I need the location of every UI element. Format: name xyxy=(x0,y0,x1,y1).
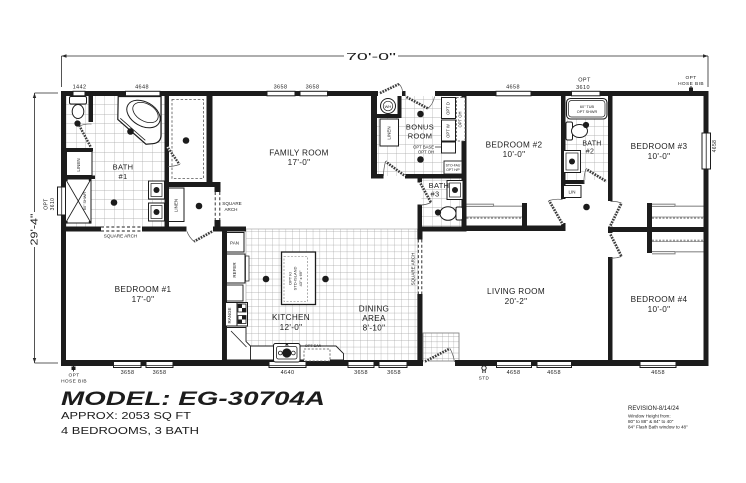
svg-text:AREA: AREA xyxy=(362,314,386,323)
svg-text:10'-0": 10'-0" xyxy=(648,152,671,161)
svg-text:SQUARE ARCH: SQUARE ARCH xyxy=(411,253,416,286)
svg-text:STO-FAU: STO-FAU xyxy=(446,164,461,168)
svg-text:LIVING ROOM: LIVING ROOM xyxy=(487,287,545,296)
svg-text:MODEL: EG-30704A: MODEL: EG-30704A xyxy=(61,388,325,410)
svg-text:REVISION-8/14/24: REVISION-8/14/24 xyxy=(628,405,679,412)
svg-text:3658: 3658 xyxy=(274,85,288,91)
svg-text:43" x 69": 43" x 69" xyxy=(298,270,303,287)
svg-text:LINEN: LINEN xyxy=(387,126,392,139)
svg-text:80" to 88" & 84" to 40": 80" to 88" & 84" to 40" xyxy=(628,419,674,424)
svg-text:OPT H/P: OPT H/P xyxy=(446,168,460,172)
svg-text:17'-0": 17'-0" xyxy=(288,158,311,167)
svg-text:29'-4": 29'-4" xyxy=(30,213,41,246)
svg-text:BEDROOM #3: BEDROOM #3 xyxy=(631,142,688,151)
svg-text:RANGE: RANGE xyxy=(227,307,232,323)
svg-text:LIN: LIN xyxy=(568,190,575,195)
svg-text:12'-0": 12'-0" xyxy=(280,323,303,332)
svg-text:10'-0": 10'-0" xyxy=(648,305,671,314)
svg-text:DINING: DINING xyxy=(359,305,389,314)
svg-text:4 BEDROOMS, 3 BATH: 4 BEDROOMS, 3 BATH xyxy=(61,426,199,437)
svg-text:ROOM: ROOM xyxy=(408,132,433,141)
svg-text:STD-ISLAND: STD-ISLAND xyxy=(293,266,298,290)
svg-text:3658: 3658 xyxy=(387,370,401,376)
svg-text:REFER: REFER xyxy=(232,262,237,278)
svg-text:LINEN: LINEN xyxy=(76,158,81,171)
svg-text:#3: #3 xyxy=(431,190,440,199)
svg-text:KITCHEN: KITCHEN xyxy=(272,313,310,322)
svg-text:4658: 4658 xyxy=(506,85,520,91)
svg-text:#1: #1 xyxy=(119,172,128,181)
svg-text:3610: 3610 xyxy=(576,85,590,91)
svg-text:BEDROOM #4: BEDROOM #4 xyxy=(631,295,688,304)
svg-text:BATH: BATH xyxy=(113,163,134,172)
svg-text:BEDROOM #1: BEDROOM #1 xyxy=(115,285,172,294)
svg-text:STD: STD xyxy=(479,376,490,381)
svg-text:ARCH: ARCH xyxy=(224,207,237,212)
svg-text:60" SHWR: 60" SHWR xyxy=(83,192,87,210)
svg-text:8'-10": 8'-10" xyxy=(363,324,386,333)
svg-text:4640: 4640 xyxy=(281,370,295,376)
svg-text:4658: 4658 xyxy=(507,370,521,376)
svg-text:1442: 1442 xyxy=(73,85,87,91)
svg-text:SQUARE: SQUARE xyxy=(222,201,241,206)
svg-text:BONUS: BONUS xyxy=(406,123,434,132)
svg-text:OPT: OPT xyxy=(68,373,79,379)
svg-text:3658: 3658 xyxy=(153,370,167,376)
svg-text:4648: 4648 xyxy=(135,85,149,91)
svg-text:OPT OH: OPT OH xyxy=(418,150,434,155)
svg-text:#2: #2 xyxy=(586,149,594,156)
svg-text:OPT W: OPT W xyxy=(446,124,451,138)
svg-text:4658: 4658 xyxy=(712,140,718,153)
svg-text:4658: 4658 xyxy=(651,370,665,376)
svg-text:84" Flash Bath window to 48": 84" Flash Bath window to 48" xyxy=(628,425,688,430)
svg-text:BATH: BATH xyxy=(582,141,601,148)
svg-text:4658: 4658 xyxy=(547,370,561,376)
svg-text:OPT: OPT xyxy=(578,78,591,84)
svg-text:LINEN: LINEN xyxy=(174,199,179,212)
svg-text:3658: 3658 xyxy=(306,85,320,91)
svg-text:70'-0": 70'-0" xyxy=(346,52,397,63)
svg-text:3610: 3610 xyxy=(50,198,56,211)
svg-text:APPROX: 2053 SQ FT: APPROX: 2053 SQ FT xyxy=(61,411,191,422)
svg-text:3658: 3658 xyxy=(354,370,368,376)
svg-text:HOSE BIB: HOSE BIB xyxy=(61,379,87,385)
svg-text:OPT OH: OPT OH xyxy=(458,112,463,128)
svg-text:HOSE BIB: HOSE BIB xyxy=(678,81,704,87)
svg-text:PAN: PAN xyxy=(230,241,239,246)
svg-text:SQUARE ARCH: SQUARE ARCH xyxy=(104,234,137,239)
svg-text:OPT: OPT xyxy=(685,75,696,81)
svg-text:OPT D: OPT D xyxy=(446,102,451,115)
svg-text:Window Height from:: Window Height from: xyxy=(628,414,671,419)
svg-text:BEDROOM #2: BEDROOM #2 xyxy=(486,141,543,150)
svg-text:OPT D/W: OPT D/W xyxy=(305,344,322,348)
svg-text:FAMILY ROOM: FAMILY ROOM xyxy=(269,149,328,158)
svg-text:OPT: OPT xyxy=(44,198,50,209)
svg-text:60" TUB: 60" TUB xyxy=(580,105,595,109)
svg-text:17'-0": 17'-0" xyxy=(132,295,155,304)
svg-text:OPT SHWR: OPT SHWR xyxy=(577,110,598,114)
svg-text:3658: 3658 xyxy=(121,370,135,376)
svg-text:10'-0": 10'-0" xyxy=(503,150,526,159)
svg-text:WH: WH xyxy=(385,104,392,109)
svg-text:20'-2": 20'-2" xyxy=(505,297,528,306)
